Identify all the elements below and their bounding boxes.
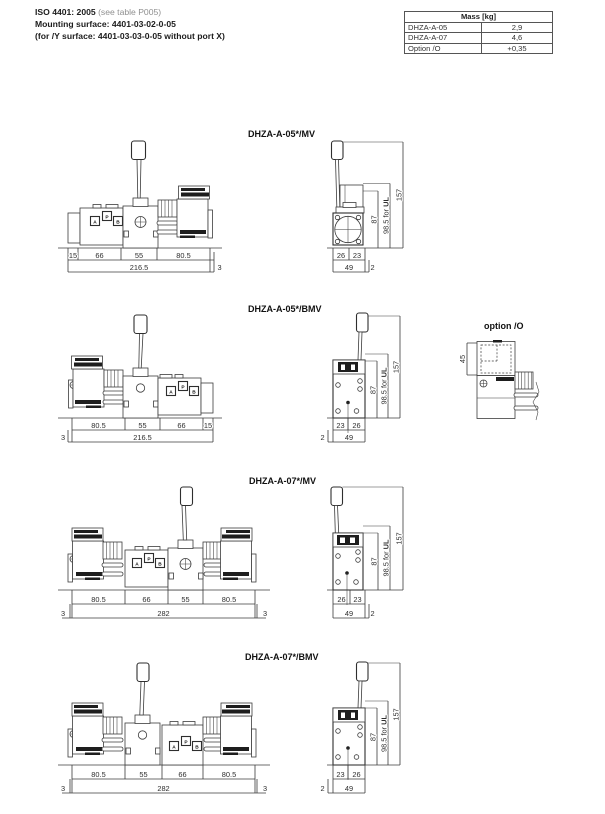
dim-label: 23 (336, 421, 344, 430)
lever-stem (358, 681, 362, 708)
dim-label: 80.5 (91, 595, 105, 604)
dim-label: 15 (204, 421, 212, 430)
dim-label: 66 (142, 595, 150, 604)
dim-label: 23 (336, 770, 344, 779)
dim-label: 80.5 (91, 770, 105, 779)
lever-stem (140, 682, 145, 716)
lever-stem (335, 506, 339, 534)
drawing-07mv-front: A P B 80.5 66 55 80.5 3 282 3 (58, 487, 270, 618)
dim-label: 26 (352, 770, 360, 779)
lever-stem (137, 160, 141, 199)
drawing-05bmv-side: 23 26 2 49 87 98.5 for UL 157 (320, 313, 400, 442)
drawing-05bmv-front: A P B 80.5 55 66 15 3 216.5 (58, 315, 222, 442)
drawing-07mv-side: 26 23 49 2 87 98.5 for UL 157 (327, 487, 404, 618)
option-o-detail: 45 (458, 340, 539, 420)
dim-height-157: 157 (392, 361, 401, 373)
lever-knob (357, 313, 369, 332)
dim-height-ul: 98.5 for UL (382, 539, 391, 576)
dim-height-87: 87 (369, 386, 378, 394)
dim-label: 55 (135, 251, 143, 260)
dim-offset-label: 2 (370, 609, 374, 618)
dim-label: 26 (352, 421, 360, 430)
lever-knob (332, 141, 344, 160)
dim-offset-label: 3 (217, 263, 221, 272)
dim-height-87: 87 (369, 733, 378, 741)
lever-knob (137, 663, 149, 682)
drawing-05mv-front: A P B 15 66 55 80.5 216.5 3 (58, 141, 222, 272)
port-b-label: B (195, 745, 199, 751)
dim-label: 66 (95, 251, 103, 260)
dim-label: 80.5 (91, 421, 105, 430)
lever-knob (331, 487, 343, 506)
lever-knob (357, 662, 369, 681)
dim-width-label: 49 (345, 263, 353, 272)
lever-stem (336, 160, 341, 214)
port-a-label: A (93, 220, 97, 226)
technical-drawings: A P B 15 66 55 80.5 216.5 3 (0, 0, 605, 814)
dim-label: 26 (337, 595, 345, 604)
dim-offset-label: 3 (61, 609, 65, 618)
dim-label: 66 (178, 770, 186, 779)
dim-label: 26 (337, 251, 345, 260)
dim-offset-label: 2 (320, 433, 324, 442)
lever-knob (181, 487, 193, 506)
dim-height-ul: 98.5 for UL (382, 197, 391, 234)
port-b-label: B (158, 562, 162, 568)
dim-label: 80.5 (222, 770, 236, 779)
dim-label: 80.5 (176, 251, 190, 260)
dim-total-label: 216.5 (130, 263, 149, 272)
dim-offset-label: 3 (263, 609, 267, 618)
dim-height-87: 87 (370, 557, 379, 565)
dim-width-label: 49 (345, 784, 353, 793)
dim-total-label: 216.5 (133, 433, 152, 442)
drawing-07bmv-front: A P B 80.5 55 66 80.5 3 282 3 (58, 663, 270, 793)
dim-height-157: 157 (395, 532, 404, 544)
lever-stem (182, 506, 187, 541)
dim-height-157: 157 (395, 189, 404, 201)
lever-stem (139, 334, 143, 369)
dim-label: 23 (353, 595, 361, 604)
port-a-label: A (169, 390, 173, 396)
dim-label: 66 (177, 421, 185, 430)
dim-offset-label: 3 (61, 784, 65, 793)
dim-total-label: 282 (157, 784, 169, 793)
dim-label: 55 (138, 421, 146, 430)
dim-offset-label: 2 (370, 263, 374, 272)
dim-height-ul: 98.5 for UL (380, 715, 389, 752)
dim-width-label: 49 (345, 433, 353, 442)
dim-label: 15 (69, 251, 77, 260)
dim-label: 55 (181, 595, 189, 604)
port-b-label: B (116, 220, 120, 226)
dim-offset-label: 3 (61, 433, 65, 442)
dim-height-ul: 98.5 for UL (380, 367, 389, 404)
drawing-07bmv-side: 23 26 2 49 87 98.5 for UL 157 (320, 662, 400, 793)
dim-width-label: 49 (345, 609, 353, 618)
break-line (533, 382, 539, 420)
dim-offset-label: 2 (320, 784, 324, 793)
port-a-label: A (172, 745, 176, 751)
dim-height-87: 87 (370, 215, 379, 223)
lever-knob (132, 141, 146, 160)
dim-total-label: 282 (157, 609, 169, 618)
dim-45-label: 45 (458, 355, 467, 363)
lever-knob (134, 315, 147, 334)
drawing-05mv-side: 26 23 49 2 87 98.5 for UL 157 (327, 141, 404, 272)
dim-height-157: 157 (392, 708, 401, 720)
datasheet-page: ISO 4401: 2005 (see table P005) Mounting… (0, 0, 605, 814)
dim-label: 23 (353, 251, 361, 260)
dim-offset-label: 3 (263, 784, 267, 793)
lever-stem (358, 332, 362, 360)
port-a-label: A (135, 562, 139, 568)
dim-label: 55 (139, 770, 147, 779)
dim-label: 80.5 (222, 595, 236, 604)
port-b-label: B (192, 390, 196, 396)
